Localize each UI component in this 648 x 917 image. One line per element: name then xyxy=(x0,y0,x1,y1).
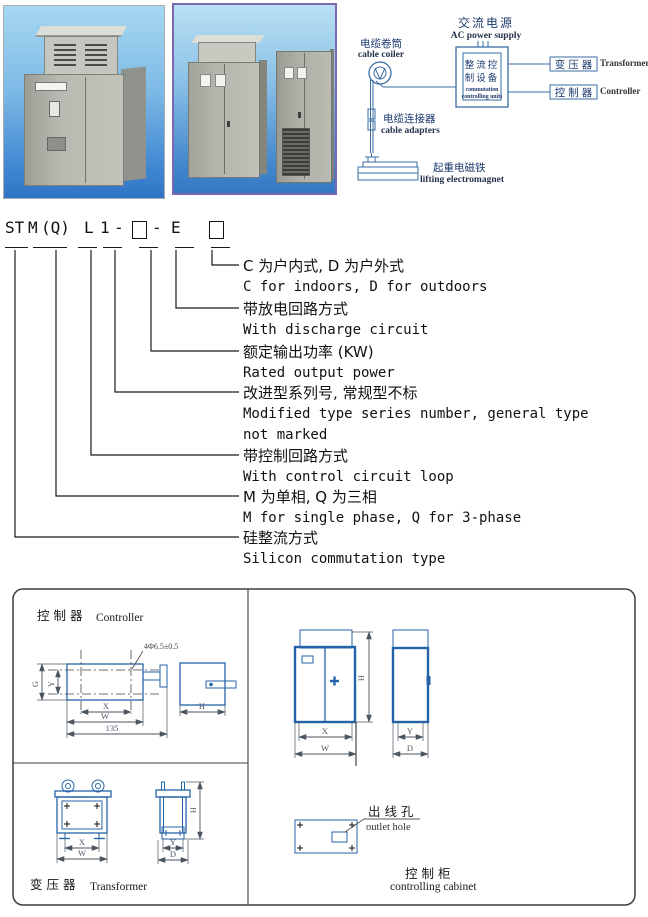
dim-W: W xyxy=(78,848,86,858)
meaning-en: Rated output power xyxy=(243,363,395,384)
code-underscore xyxy=(211,247,230,248)
code-meaning-control-loop: 带控制回路方式 With control circuit loop xyxy=(243,446,454,488)
code-underscore xyxy=(139,247,158,248)
dim-Y: Y xyxy=(46,681,56,687)
meaning-cn: C 为户内式, D 为户外式 xyxy=(243,256,487,277)
code-blank-box xyxy=(132,221,147,239)
lifting-electromagnet-shape xyxy=(358,153,418,180)
meaning-cn: 改进型系列号, 常规型不标 xyxy=(243,383,589,404)
code-underscore xyxy=(5,247,28,248)
transformer-drawing-title-cn: 变 压 器 xyxy=(30,877,76,892)
dim-135: 135 xyxy=(106,723,119,733)
unit-label-cn2: 制设备 xyxy=(465,72,500,84)
code-meaning-indoors: C 为户内式, D 为户外式 C for indoors, D for outd… xyxy=(243,256,487,298)
switch xyxy=(49,101,60,117)
power-feed-lines xyxy=(478,41,488,47)
code-part-1: 1 xyxy=(100,218,110,238)
cable-coiler-label-cn: 电缆卷筒 xyxy=(360,37,402,50)
dim-D: D xyxy=(170,849,176,859)
meaning-cn: M 为单相, Q 为三相 xyxy=(243,487,521,508)
door-seam xyxy=(85,77,86,183)
cabinet-a-side xyxy=(259,60,267,174)
meaning-en: Silicon commutation type xyxy=(243,549,445,570)
cable-adapter xyxy=(368,109,375,130)
nameplate xyxy=(284,67,294,79)
meaning-cn: 额定输出功率 (KW) xyxy=(243,342,395,363)
cabinet-b-front xyxy=(276,51,332,183)
outlet-hole-label-cn: 出 线 孔 xyxy=(368,804,414,819)
electromagnet-label-en: lifting electromagnet xyxy=(420,175,505,185)
controller-dimensions: G Y X W 135 xyxy=(30,664,167,738)
cabinet-a-front xyxy=(188,62,260,178)
unit-label-en1: commutation xyxy=(466,87,500,93)
code-meaning-silicon: 硅整流方式 Silicon commutation type xyxy=(243,528,445,570)
meaning-en2: not marked xyxy=(243,425,589,446)
dim-W: W xyxy=(321,743,329,753)
dim-X: X xyxy=(322,726,328,736)
meaning-cn: 带控制回路方式 xyxy=(243,446,454,467)
louver-panel xyxy=(282,128,310,176)
code-meaning-power: 额定输出功率 (KW) Rated output power xyxy=(243,342,395,384)
controller-drawing-title-en: Controller xyxy=(96,612,143,624)
cable-coiler-label-en: cable coiler xyxy=(358,50,405,60)
meaning-en: With control circuit loop xyxy=(243,467,454,488)
controller-drawing-title-cn: 控 制 器 xyxy=(37,608,83,623)
dim-G: G xyxy=(30,681,40,687)
code-part-l: L xyxy=(84,218,94,238)
electromagnet-label-cn: 起重电磁铁 xyxy=(433,161,486,174)
panel-detail xyxy=(47,137,66,151)
ac-power-label-cn: 交流电源 xyxy=(458,15,514,30)
cabinet-drawing-title-en: controlling cabinet xyxy=(390,881,477,893)
nameplate xyxy=(35,82,67,91)
code-blank-box xyxy=(209,221,224,239)
dim-Y: Y xyxy=(170,837,176,847)
outlet-hole-label-en: outlet hole xyxy=(366,822,411,833)
code-part-st: ST xyxy=(5,218,24,238)
cable-coiler-pulley xyxy=(369,62,391,84)
outlet-hole-shape xyxy=(332,832,347,842)
controller-box: 控制器 Controller xyxy=(550,85,640,99)
transformer-drawing-title-en: Transformer xyxy=(90,881,147,893)
cable-adapters-label-cn: 电缆连接器 xyxy=(383,112,436,125)
dim-X: X xyxy=(103,701,109,711)
dim-X: X xyxy=(79,837,85,847)
product-photo-single-cabinet xyxy=(3,5,165,199)
unit-label-cn1: 整流控 xyxy=(465,59,500,71)
dim-Y: Y xyxy=(407,726,413,736)
commutation-unit-box: 整流控 制设备 commutation controlling units xyxy=(456,47,508,107)
catalog-page: 交流电源 AC power supply 整流控 制设备 commutation… xyxy=(0,0,648,917)
ac-power-label-en: AC power supply xyxy=(451,31,522,41)
hole-callout: 4Φ6.5±0.5 xyxy=(132,642,178,669)
cabinet-drawing-title-cn: 控 制 柜 xyxy=(405,866,450,881)
code-dash: - xyxy=(152,218,162,238)
meaning-en: Modified type series number, general typ… xyxy=(243,404,589,425)
dim-W: W xyxy=(101,711,109,721)
cabinet-side xyxy=(121,67,146,182)
transformer-side-view: H Y D xyxy=(156,782,204,864)
transformer-box: 变压器 Transformer xyxy=(550,57,648,71)
controller-label-cn: 控制器 xyxy=(555,86,596,99)
nameplate xyxy=(297,67,307,79)
nameplate xyxy=(200,74,211,87)
code-underscore xyxy=(103,247,122,248)
louver-grille xyxy=(54,44,76,66)
dim-H: H xyxy=(199,701,205,711)
vent-box xyxy=(44,36,118,75)
dim-H: H xyxy=(188,807,198,813)
system-schematic: 交流电源 AC power supply 整流控 制设备 commutation… xyxy=(340,5,648,190)
louver-grille xyxy=(85,44,107,66)
cabinet-side-view: Y D xyxy=(393,630,431,758)
dimension-drawings-panel: 控 制 器 Controller 4Φ6.5±0.5 G Y X xyxy=(12,588,636,906)
meaning-en: M for single phase, Q for 3-phase xyxy=(243,508,521,529)
nameplate xyxy=(215,74,226,87)
meaning-cn: 带放电回路方式 xyxy=(243,299,428,320)
transformer-label-cn: 变压器 xyxy=(555,58,596,71)
transformer-label-en: Transformer xyxy=(600,58,648,68)
unit-label-en2: controlling units xyxy=(462,94,503,100)
code-underscore xyxy=(33,247,67,248)
code-part-m: M xyxy=(28,218,38,238)
code-meaning-series: 改进型系列号, 常规型不标 Modified type series numbe… xyxy=(243,383,589,446)
code-part-q: (Q) xyxy=(41,218,70,238)
code-part-e: E xyxy=(171,218,181,238)
meaning-en: C for indoors, D for outdoors xyxy=(243,277,487,298)
code-meaning-phase: M 为单相, Q 为三相 M for single phase, Q for 3… xyxy=(243,487,521,529)
cable-adapters-label-en: cable adapters xyxy=(381,126,440,136)
dim-H: H xyxy=(356,675,366,681)
meaning-cn: 硅整流方式 xyxy=(243,528,445,549)
product-photo-twin-cabinets xyxy=(172,3,337,195)
keyhole xyxy=(298,112,301,118)
code-meaning-discharge: 带放电回路方式 With discharge circuit xyxy=(243,299,428,341)
controller-label-en: Controller xyxy=(600,86,640,96)
dim-D: D xyxy=(407,743,413,753)
cabinet-front-view xyxy=(295,630,355,722)
code-dash: - xyxy=(114,218,124,238)
code-underscore xyxy=(175,247,194,248)
meaning-en: With discharge circuit xyxy=(243,320,428,341)
cabinet-front-dimensions: H X W xyxy=(295,632,373,766)
code-underscore xyxy=(78,247,97,248)
controller-side-view: H xyxy=(180,663,236,716)
hole-note-text: 4Φ6.5±0.5 xyxy=(144,642,178,651)
transformer-front-view: X W xyxy=(55,780,111,863)
keyhole xyxy=(227,121,230,127)
code-leader-lines xyxy=(0,249,250,549)
cabinet-front xyxy=(24,74,124,186)
